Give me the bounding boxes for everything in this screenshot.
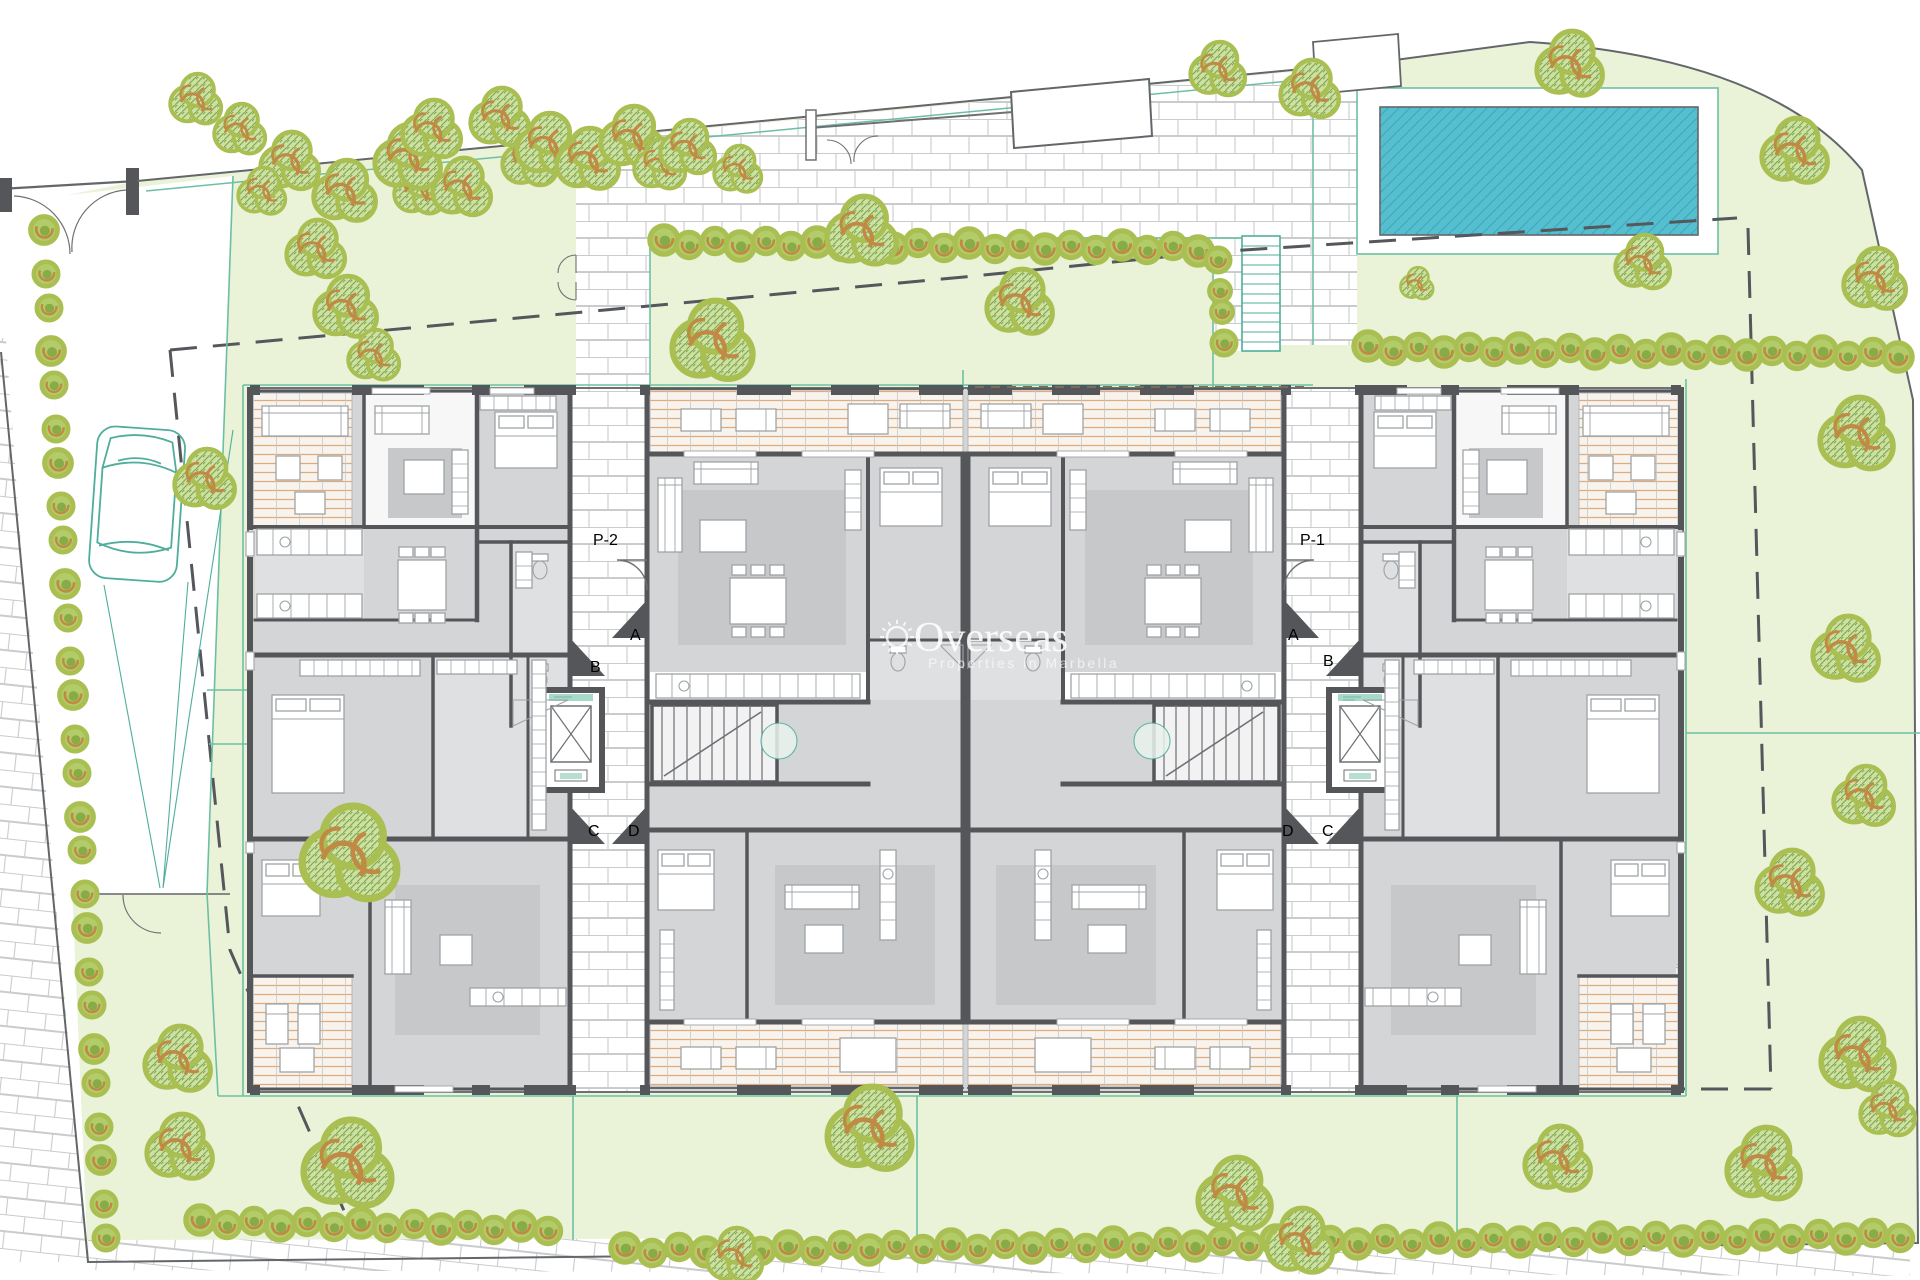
- svg-text:P-2: P-2: [593, 532, 618, 549]
- svg-text:Properties in Marbella: Properties in Marbella: [928, 655, 1119, 671]
- svg-text:P-1: P-1: [1300, 532, 1325, 549]
- svg-text:D: D: [1282, 823, 1294, 840]
- svg-text:A: A: [1288, 627, 1299, 644]
- svg-text:D: D: [628, 823, 640, 840]
- svg-text:B: B: [1323, 653, 1334, 670]
- svg-text:C: C: [1322, 823, 1334, 840]
- svg-text:A: A: [630, 627, 641, 644]
- svg-text:C: C: [588, 823, 600, 840]
- svg-text:B: B: [590, 659, 601, 676]
